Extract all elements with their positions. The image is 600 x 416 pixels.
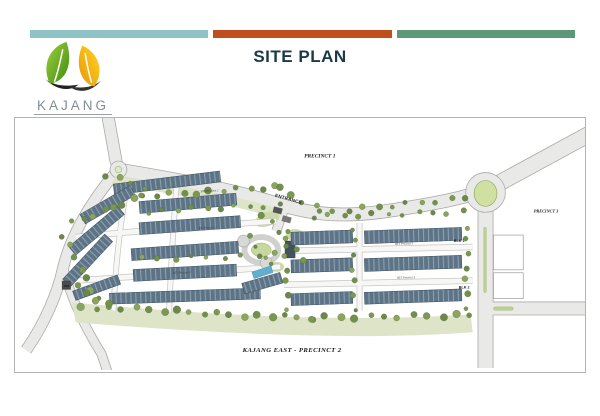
header-accent-bars <box>30 30 575 38</box>
tree <box>294 247 300 253</box>
tree <box>359 204 365 210</box>
tree <box>117 174 123 180</box>
housing-row <box>131 241 239 260</box>
tree <box>276 184 283 191</box>
tree <box>102 173 108 179</box>
tree <box>390 205 394 209</box>
housing-row <box>364 255 462 271</box>
tree <box>90 214 96 220</box>
tree <box>352 278 358 284</box>
leaves-logo-icon <box>39 40 107 92</box>
tree <box>269 262 273 266</box>
slide: SITE PLAN KAJANG E A S T <box>0 0 600 416</box>
tree <box>283 236 288 241</box>
housing-row <box>139 216 241 235</box>
tree <box>321 312 328 319</box>
tree <box>467 313 472 318</box>
tree <box>343 213 348 218</box>
tree <box>277 230 282 235</box>
tree <box>284 244 289 249</box>
tree <box>254 245 258 249</box>
tree <box>355 214 361 220</box>
tree <box>269 313 277 321</box>
tree <box>225 311 231 317</box>
tree <box>284 268 290 274</box>
tree <box>325 212 330 217</box>
site-plan-panel: TNB PRECINCT 1 PRECINCT 3 KAJANG EAST - … <box>14 117 586 373</box>
tree <box>432 200 437 205</box>
tree <box>77 303 85 311</box>
street-label: BT5 Precinct 2 <box>397 275 416 280</box>
tree <box>443 211 448 216</box>
tree <box>159 207 164 212</box>
tree <box>83 290 90 297</box>
tree <box>387 212 391 216</box>
tree <box>465 226 470 231</box>
tree <box>282 253 287 258</box>
precinct1-label: PRECINCT 1 <box>304 154 336 160</box>
tree <box>418 209 423 214</box>
tree <box>83 274 90 281</box>
precinct2-caption: KAJANG EAST - PRECINCT 2 <box>242 347 342 354</box>
blk1-label: BLK 1 <box>454 239 465 243</box>
tree <box>423 312 430 319</box>
tree <box>154 256 160 262</box>
tree <box>350 292 356 298</box>
tree <box>143 186 148 191</box>
tree <box>79 267 86 274</box>
tree <box>118 202 125 209</box>
tree <box>461 208 467 214</box>
tree <box>272 250 278 256</box>
tree <box>308 316 314 322</box>
tree <box>206 205 212 211</box>
tree <box>95 307 100 312</box>
tree <box>257 254 262 259</box>
tree <box>75 282 81 288</box>
accent-bar-orange <box>213 30 391 38</box>
tree <box>411 311 417 317</box>
tree <box>278 202 283 207</box>
tree <box>131 194 138 201</box>
tree <box>368 210 374 216</box>
tree <box>182 190 189 197</box>
tree <box>314 203 319 208</box>
accent-bar-teal <box>30 30 208 38</box>
tree <box>312 216 317 221</box>
main-roundabout-island <box>474 181 497 207</box>
tree <box>353 238 358 243</box>
tree <box>238 253 243 258</box>
tree <box>186 309 191 314</box>
tree <box>247 233 252 238</box>
tree <box>260 187 266 193</box>
tree <box>134 304 140 310</box>
tree <box>92 297 99 304</box>
tree <box>369 313 374 318</box>
tree <box>330 209 335 214</box>
tree <box>347 209 353 215</box>
tree <box>110 204 117 211</box>
tree <box>138 193 143 198</box>
tree <box>403 200 408 205</box>
tree <box>233 185 238 190</box>
tree <box>71 254 77 260</box>
housing-row <box>291 230 353 245</box>
tree <box>147 211 151 215</box>
tree <box>282 278 288 284</box>
housing-row <box>364 227 462 243</box>
tree <box>253 311 260 318</box>
tree <box>270 219 274 223</box>
tree <box>284 308 288 312</box>
yellow-leaf-icon <box>79 46 100 87</box>
tree <box>464 307 468 311</box>
tree <box>431 210 436 215</box>
tree <box>294 315 300 321</box>
housing-row <box>364 289 462 304</box>
tree <box>176 208 181 213</box>
tree <box>105 300 112 307</box>
tree <box>285 292 291 298</box>
tree <box>258 212 265 219</box>
tree <box>317 209 322 214</box>
kajang-east-logo: KAJANG E A S T <box>30 40 116 126</box>
tree <box>450 195 456 201</box>
tree <box>282 312 287 317</box>
tree <box>214 309 220 315</box>
tree <box>139 255 144 260</box>
green-leaf-icon <box>46 42 69 84</box>
road-median-vertical <box>484 227 487 292</box>
street-label: BT5 Precinct 2 <box>395 241 414 246</box>
tree <box>420 200 425 205</box>
housing-row <box>109 288 260 304</box>
tree <box>67 242 73 248</box>
tree <box>350 228 354 232</box>
tree <box>204 255 208 259</box>
tree <box>394 315 400 321</box>
tree <box>381 314 387 320</box>
tree <box>249 186 255 192</box>
tree <box>241 314 248 321</box>
tree <box>349 268 354 273</box>
tree <box>222 189 227 194</box>
tree <box>188 205 193 210</box>
tree <box>300 257 306 263</box>
tree <box>261 205 266 210</box>
tree <box>69 219 74 224</box>
blk2-label: BLK 2 <box>459 286 470 290</box>
tree <box>102 206 108 212</box>
tree <box>462 276 468 282</box>
tree <box>82 216 87 221</box>
tree <box>59 234 64 239</box>
accent-bar-green <box>397 30 575 38</box>
future-blocks <box>493 235 523 298</box>
site-plan-drawing: TNB PRECINCT 1 PRECINCT 3 KAJANG EAST - … <box>15 118 585 370</box>
road-median-horizontal <box>493 307 513 310</box>
tree <box>218 206 224 212</box>
tree <box>286 229 291 234</box>
tree <box>161 308 168 315</box>
tree <box>354 308 358 312</box>
housing-row <box>291 292 353 306</box>
tree <box>166 190 172 196</box>
tree <box>453 310 461 318</box>
precinct3-label: PRECINCT 3 <box>534 208 559 213</box>
tree <box>173 257 179 263</box>
tree <box>376 204 382 210</box>
small-roundabout-island <box>115 166 122 173</box>
tree <box>118 307 124 313</box>
tnb-label: TNB <box>64 284 70 288</box>
tree <box>264 256 268 260</box>
tree <box>193 191 200 198</box>
tree <box>145 306 152 313</box>
tree <box>440 314 447 321</box>
street-label: BT5 Precinct 2 <box>173 270 192 275</box>
tree <box>400 213 404 217</box>
tree <box>231 204 235 208</box>
tree <box>128 181 132 185</box>
tree <box>154 194 160 200</box>
tree <box>202 312 208 318</box>
tree <box>466 251 471 256</box>
tree <box>173 306 181 314</box>
logo-brand-text: KAJANG <box>34 98 112 115</box>
tree <box>464 266 470 272</box>
tree <box>338 314 345 321</box>
tree <box>462 195 468 201</box>
tree <box>465 291 471 297</box>
tree <box>223 256 228 261</box>
tree <box>350 315 358 323</box>
tree <box>351 253 356 258</box>
tree <box>249 205 253 209</box>
tree <box>189 254 193 258</box>
